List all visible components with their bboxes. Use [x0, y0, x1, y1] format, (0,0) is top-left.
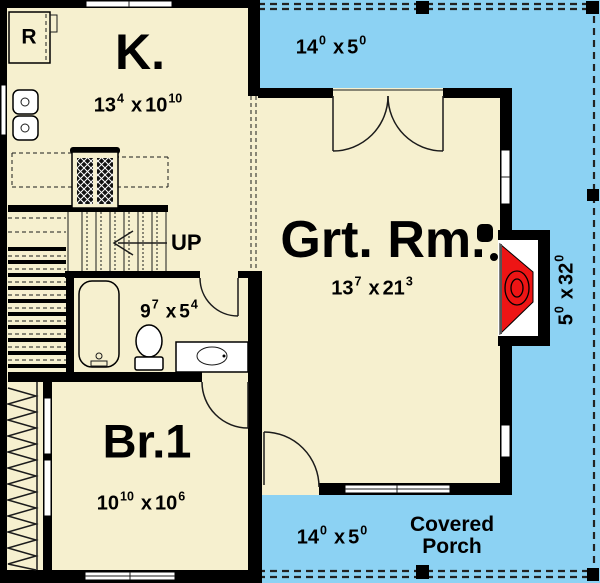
dim-sup: 4 [117, 92, 124, 106]
dim-separator: x [166, 302, 177, 323]
bedroom-dims: 1010x106 [97, 491, 189, 514]
dim-sup: 6 [178, 490, 185, 504]
dim-sup: 10 [168, 92, 182, 106]
great-room-label: Grt. Rm. [280, 214, 485, 266]
dim-number: 14 [296, 37, 318, 59]
dim-number: 5 [348, 527, 359, 549]
kitchen-dims: 134x1010 [94, 93, 186, 116]
porch-post [416, 1, 429, 14]
bedroom-left-window-1 [44, 398, 51, 454]
dim-number: 13 [94, 95, 116, 117]
dim-number: 21 [383, 278, 405, 300]
dim-number: 10 [155, 493, 177, 515]
dim-number: 32 [556, 263, 578, 285]
dim-separator: x [333, 37, 344, 59]
dim-sup: 0 [319, 34, 326, 48]
dim-sup: 0 [360, 524, 367, 538]
dim-number: 10 [97, 493, 119, 515]
dim-sup: 7 [354, 275, 361, 289]
dim-number: 13 [331, 278, 353, 300]
refrigerator-label: R [21, 27, 36, 48]
bedroom-label: Br.1 [103, 418, 192, 465]
floor-plan: K. 134x1010 R UP Grt. Rm. 137x213 97x54 … [0, 0, 600, 583]
porch-post [587, 568, 599, 581]
dim-separator: x [334, 527, 345, 549]
bathtub [79, 281, 119, 367]
dim-sup: 0 [553, 306, 567, 313]
dim-number: 5 [556, 314, 578, 325]
kitchen-label: K. [115, 27, 165, 77]
dim-sup: 4 [191, 298, 198, 312]
dim-number: 14 [297, 527, 319, 549]
porch-bottom-dims: 140x50 [297, 525, 371, 548]
bathroom-dims: 97x54 [140, 299, 202, 322]
dim-separator: x [141, 493, 152, 515]
great-room-dims: 137x213 [331, 276, 417, 299]
toilet [136, 325, 162, 357]
dim-number: 5 [179, 302, 190, 323]
dim-separator: x [368, 278, 379, 300]
dim-sup: 0 [553, 255, 567, 262]
dim-number: 10 [145, 95, 167, 117]
great-room-right-window-2 [501, 425, 510, 457]
stove [70, 147, 120, 208]
floor-plan-drawing [0, 0, 600, 583]
up-label: UP [171, 232, 202, 254]
porch-side-dims: 50x320 [554, 251, 577, 325]
dim-sup: 10 [120, 490, 134, 504]
dim-sup: 7 [152, 298, 159, 312]
bedroom-left-window-2 [44, 460, 51, 516]
dim-sup: 0 [359, 34, 366, 48]
porch-top-dims: 140x50 [296, 35, 370, 58]
covered-porch-line2: Porch [410, 536, 494, 558]
dim-sup: 3 [406, 275, 413, 289]
dim-separator: x [556, 288, 578, 299]
hearth-dot [490, 253, 498, 261]
porch-post [416, 565, 429, 579]
porch-post [587, 189, 599, 201]
dim-number: 5 [347, 37, 358, 59]
porch-post [586, 1, 599, 14]
dim-separator: x [131, 95, 142, 117]
dim-sup: 0 [320, 524, 327, 538]
covered-porch-line1: Covered [410, 514, 494, 536]
kitchen-side-window [1, 85, 6, 135]
covered-porch-label: CoveredPorch [410, 514, 494, 558]
dim-number: 9 [140, 302, 151, 323]
